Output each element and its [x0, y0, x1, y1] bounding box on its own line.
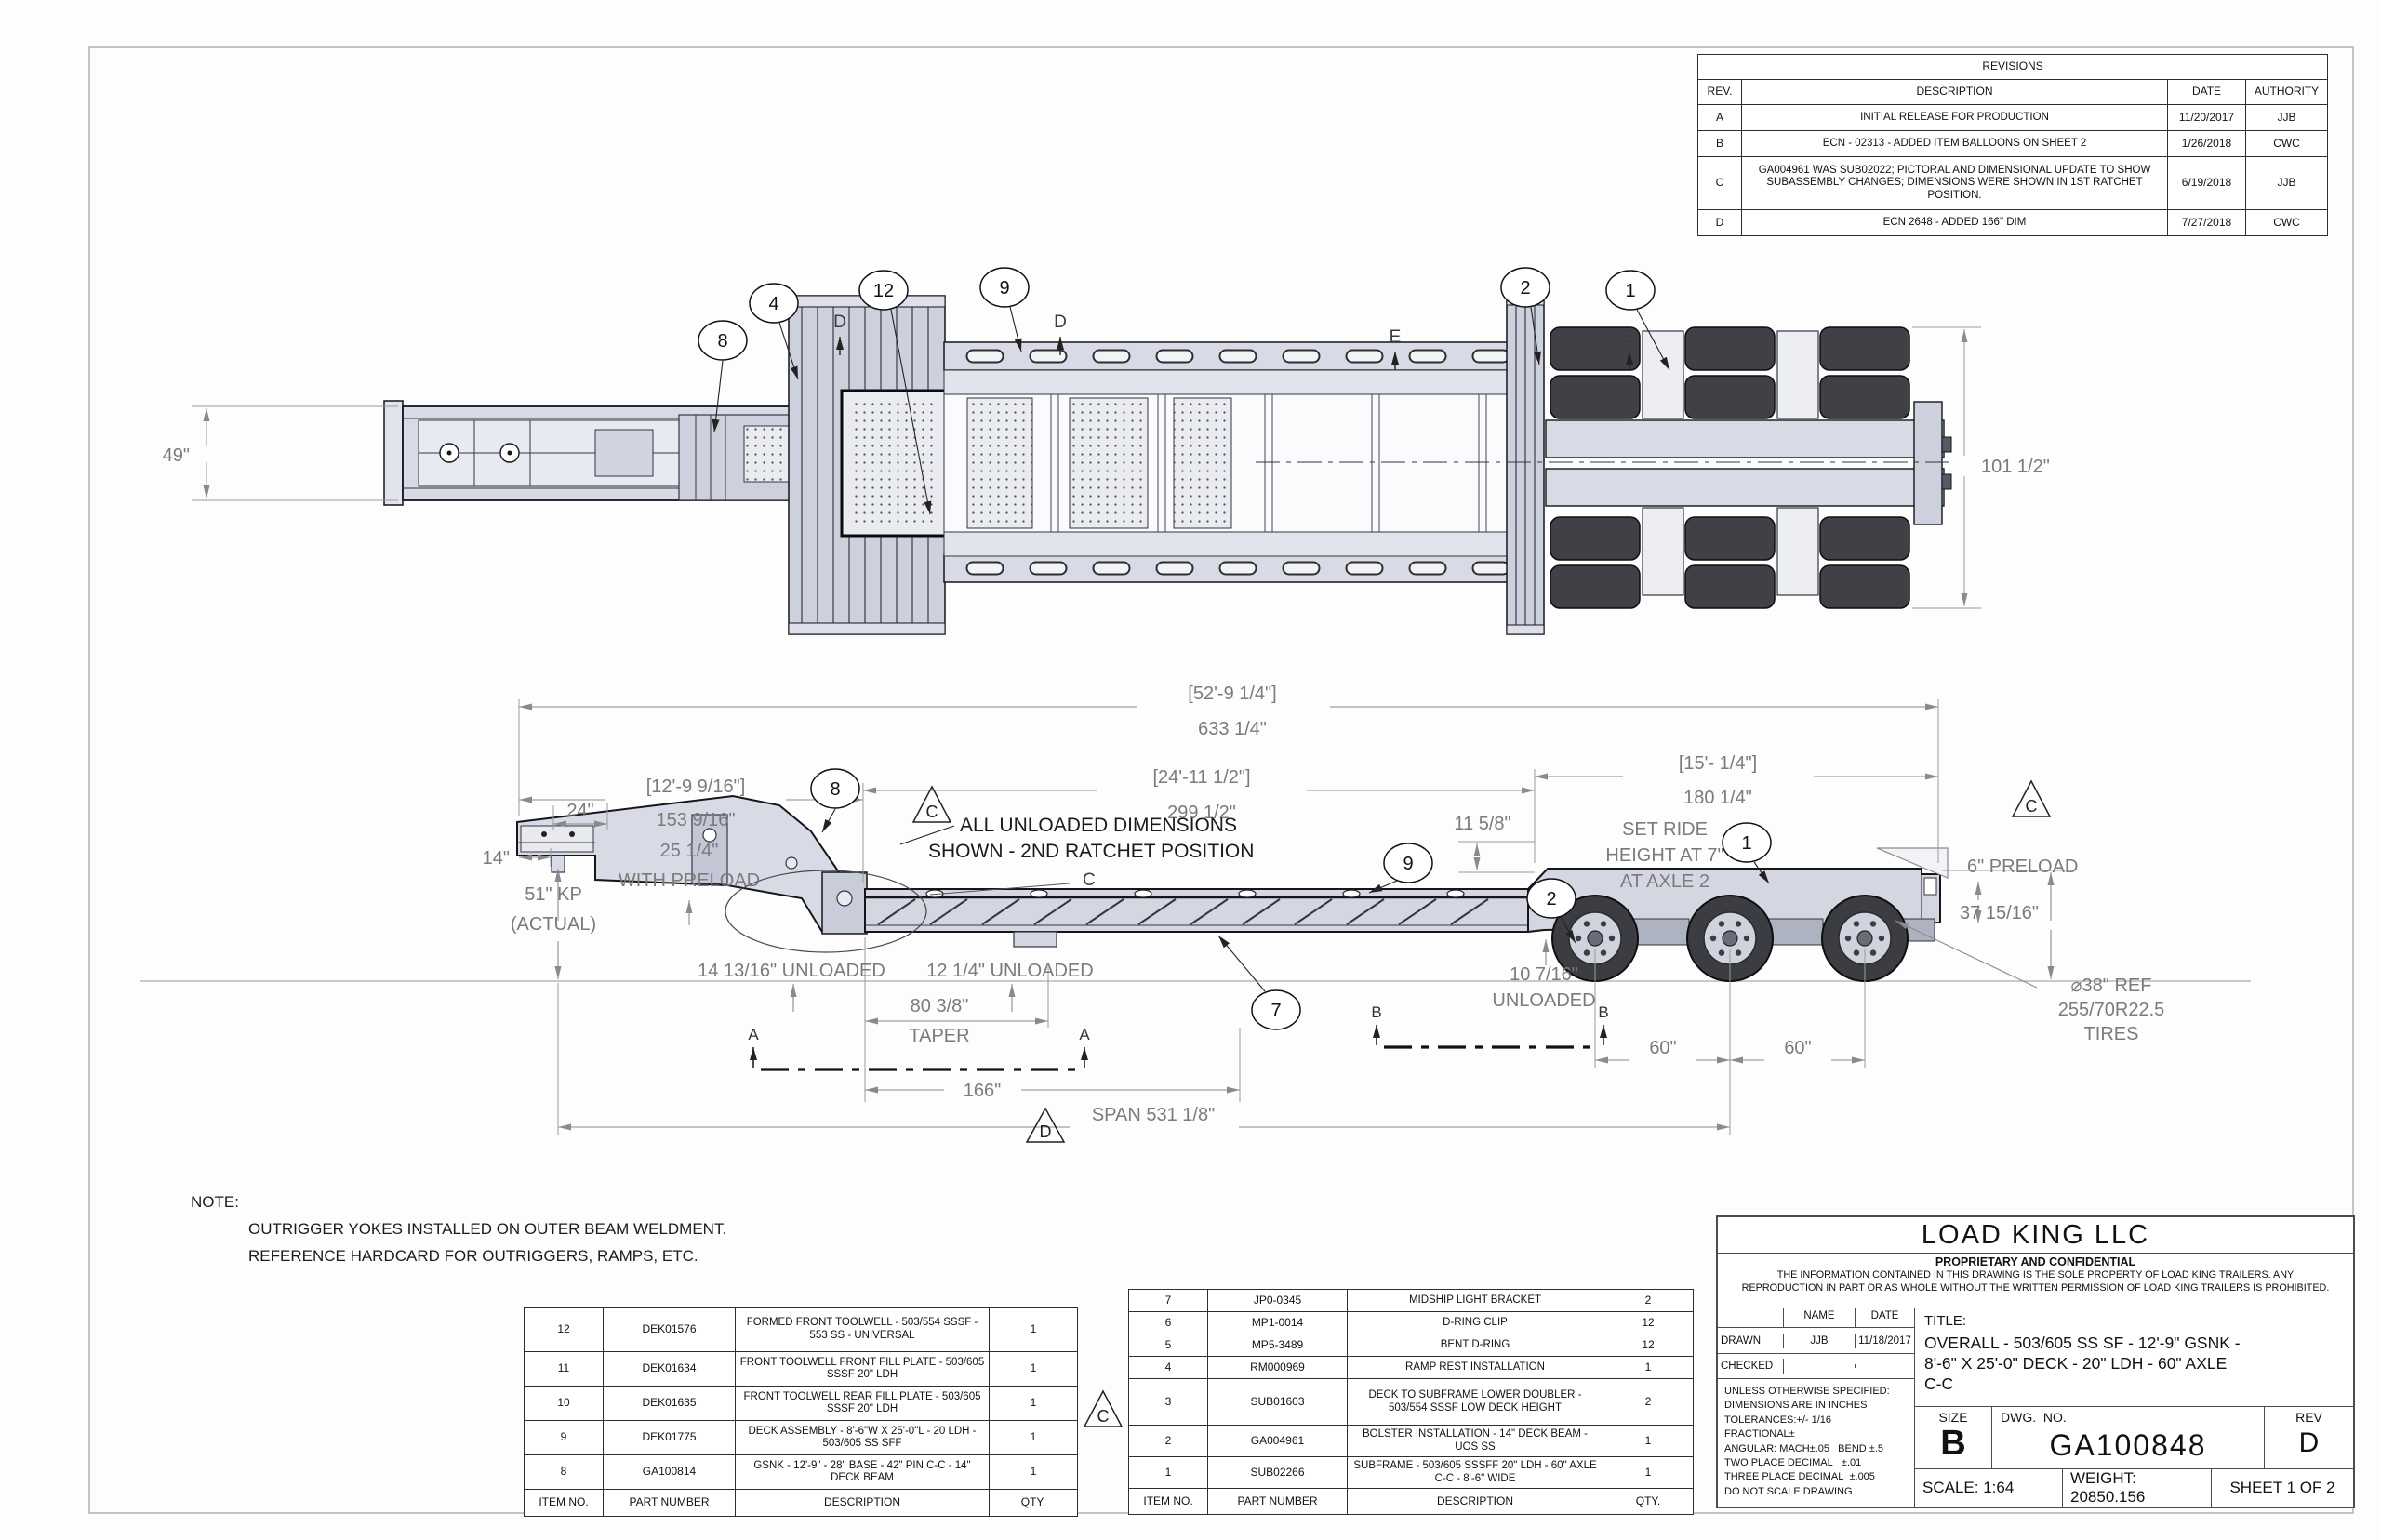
drawn-name: JJB [1784, 1334, 1856, 1348]
dim-preload6: 6" PRELOAD [1967, 856, 2078, 877]
parts-table-right: 7JP0-0345 MIDSHIP LIGHT BRACKET2 6MP1-00… [1128, 1289, 1694, 1515]
dim-unloaded-front: 14 13/16" UNLOADED [698, 961, 885, 981]
weight-value: WEIGHT: 20850.156 [2062, 1469, 2212, 1507]
date-header: DATE [1856, 1308, 1914, 1327]
svg-text:7: 7 [1270, 1001, 1281, 1021]
dim-rear-in: 180 1/4" [1683, 788, 1752, 808]
revision-row: AINITIAL RELEASE FOR PRODUCTION 11/20/20… [1698, 105, 2328, 131]
svg-text:9: 9 [999, 278, 1009, 299]
dim-kp-b: (ACTUAL) [511, 914, 596, 935]
part-row: 11DEK01634 FRONT TOOLWELL FRONT FILL PLA… [525, 1352, 1078, 1387]
authority-col-header: AUTHORITY [2246, 80, 2328, 105]
dim-preload-b: WITH PRELOAD [619, 870, 760, 891]
revision-row: CGA004961 WAS SUB02022; PICTORAL AND DIM… [1698, 157, 2328, 210]
dim-49-label: 49" [163, 445, 190, 466]
dim-unloaded-mid: 12 1/4" UNLOADED [926, 961, 1093, 981]
rev-col-header: REV. [1698, 80, 1742, 105]
part-row: 2GA004961 BOLSTER INSTALLATION - 14" DEC… [1129, 1426, 1694, 1457]
dim-49 [192, 406, 398, 500]
note-label: NOTE: [191, 1193, 726, 1212]
svg-text:C: C [926, 803, 938, 821]
unloaded-note-2: SHOWN - 2ND RATCHET POSITION [928, 841, 1254, 862]
midship-box [1014, 932, 1057, 947]
confidentiality-block: PROPRIETARY AND CONFIDENTIAL THE INFORMA… [1718, 1254, 2353, 1308]
confidential-line: THE INFORMATION CONTAINED IN THIS DRAWIN… [1718, 1268, 2353, 1281]
size-cell: SIZE B [1915, 1407, 1992, 1468]
svg-text:4: 4 [768, 294, 778, 314]
detail-c-label: C [1083, 870, 1096, 890]
note-line: REFERENCE HARDCARD FOR OUTRIGGERS, RAMPS… [248, 1247, 726, 1266]
approval-column: NAME DATE DRAWN JJB 11/18/2017 CHECKED U… [1718, 1308, 1915, 1507]
plan-tires [1550, 327, 1909, 608]
checked-label: CHECKED [1718, 1359, 1784, 1374]
parts-header-row: ITEM NO.PART NUMBER DESCRIPTIONQTY. [525, 1490, 1078, 1517]
dim-kp-a: 51" KP [525, 884, 582, 905]
drawn-label: DRAWN [1718, 1334, 1784, 1348]
svg-text:1: 1 [1741, 833, 1751, 854]
company-name: LOAD KING LLC [1718, 1217, 2353, 1254]
note-line: OUTRIGGER YOKES INSTALLED ON OUTER BEAM … [248, 1220, 726, 1239]
part-row: 7JP0-0345 MIDSHIP LIGHT BRACKET2 [1129, 1290, 1694, 1312]
drawing-sheet: 49" 101 1/2" D D E E [0, 0, 2381, 1540]
dim-60-1: 60" [1649, 1038, 1676, 1058]
dim-gsnk-ft: [12'-9 9/16"] [646, 777, 746, 797]
part-row: 4RM000969 RAMP REST INSTALLATION1 [1129, 1357, 1694, 1379]
ride-a: SET RIDE [1622, 819, 1708, 840]
note-block: NOTE: OUTRIGGER YOKES INSTALLED ON OUTER… [191, 1193, 726, 1266]
part-row: 1SUB02266 SUBFRAME - 503/605 SSSFF 20" L… [1129, 1457, 1694, 1489]
tires-c: TIRES [2084, 1024, 2139, 1044]
ride-c: AT AXLE 2 [1620, 871, 1709, 892]
svg-text:9: 9 [1403, 854, 1413, 874]
title-block: LOAD KING LLC PROPRIETARY AND CONFIDENTI… [1716, 1215, 2355, 1508]
dim-taper-b: TAPER [909, 1026, 969, 1046]
part-row: 6MP1-0014 D-RING CLIP12 [1129, 1312, 1694, 1334]
sheet-value: SHEET 1 OF 2 [2212, 1479, 2353, 1497]
plan-rear-bolster [1507, 296, 1544, 634]
rev-cell: REV D [2265, 1407, 2353, 1468]
date-col-header: DATE [2168, 80, 2246, 105]
tires-a: ⌀38" REF [2071, 976, 2152, 996]
dim-rear-ft: [15'- 1/4"] [1679, 753, 1757, 774]
revision-row: BECN - 02313 - ADDED ITEM BALLOONS ON SH… [1698, 131, 2328, 157]
dim-overall-in: 633 1/4" [1198, 719, 1267, 739]
scale-row: SCALE: 1:64 WEIGHT: 20850.156 SHEET 1 OF… [1915, 1469, 2353, 1507]
title-line-1: OVERALL - 503/605 SS SF - 12'-9" GSNK - [1924, 1333, 2344, 1353]
svg-text:12: 12 [873, 281, 894, 301]
revision-value: D [2265, 1427, 2353, 1459]
title-line-2: 8'-6" X 25'-0" DECK - 20" LDH - 60" AXLE [1924, 1353, 2344, 1374]
section-e-left: E [1390, 327, 1402, 347]
side-deck [865, 889, 1528, 947]
dim-span: SPAN 531 1/8" [1092, 1105, 1215, 1125]
dim-60-2: 60" [1784, 1038, 1811, 1058]
dwg-no-cell: DWG. NO. GA100848 [1992, 1407, 2265, 1468]
svg-text:8: 8 [717, 331, 727, 352]
part-row: 12DEK01576 FORMED FRONT TOOLWELL - 503/5… [525, 1308, 1078, 1352]
dim-unloaded-rear-a: 10 7/16" [1510, 964, 1578, 985]
side-view: C [140, 684, 2251, 1142]
dim-taper-a: 80 3/8" [911, 996, 969, 1016]
revisions-table: REVISIONS REV. DESCRIPTION DATE AUTHORIT… [1697, 54, 2328, 236]
dim-166: 166" [964, 1081, 1001, 1101]
confidential-line: REPRODUCTION IN PART OR AS WHOLE WITHOUT… [1718, 1281, 2353, 1294]
svg-text:D: D [1040, 1122, 1052, 1141]
part-row: 8GA100814 GSNK - 12'-9" - 28" BASE - 42"… [525, 1455, 1078, 1490]
part-row: 9DEK01775 DECK ASSEMBLY - 8'-6"W X 25'-0… [525, 1421, 1078, 1455]
svg-text:B: B [1598, 1003, 1608, 1021]
svg-text:C: C [2026, 797, 2038, 816]
dim-37: 37 15/16" [1960, 903, 2039, 923]
dim-14: 14" [483, 848, 510, 869]
revisions-title: REVISIONS [1698, 55, 2328, 80]
svg-text:A: A [748, 1026, 759, 1043]
unloaded-note-1: ALL UNLOADED DIMENSIONS [960, 815, 1237, 836]
svg-text:1: 1 [1625, 281, 1635, 301]
part-row: 10DEK01635 FRONT TOOLWELL REAR FILL PLAT… [525, 1387, 1078, 1421]
drawing-title: TITLE: OVERALL - 503/605 SS SF - 12'-9" … [1915, 1308, 2353, 1407]
part-row: 3SUB01603 DECK TO SUBFRAME LOWER DOUBLER… [1129, 1379, 1694, 1426]
revision-row: DECN 2648 - ADDED 166" DIM 7/27/2018CWC [1698, 210, 2328, 236]
tolerance-block: UNLESS OTHERWISE SPECIFIED: DIMENSIONS A… [1718, 1379, 1914, 1507]
svg-text:A: A [1079, 1026, 1090, 1043]
plan-front-bumper [384, 401, 403, 505]
scale-value: SCALE: 1:64 [1915, 1479, 2062, 1497]
section-e-right: E [1624, 327, 1636, 347]
drawing-number: GA100848 [1992, 1428, 2264, 1463]
dim-preload-a: 25 1/4" [660, 841, 719, 861]
rev-flag-c-table: C [1084, 1391, 1122, 1427]
title-label: TITLE: [1924, 1313, 2344, 1329]
desc-col-header: DESCRIPTION [1742, 80, 2168, 105]
title-line-3: C-C [1924, 1374, 2344, 1394]
dim-deck-ft: [24'-11 1/2"] [1152, 767, 1250, 788]
svg-text:2: 2 [1520, 278, 1530, 299]
confidential-title: PROPRIETARY AND CONFIDENTIAL [1718, 1255, 2353, 1268]
dim-24: 24" [566, 801, 593, 821]
section-d-left: D [833, 312, 846, 332]
svg-text:8: 8 [830, 779, 840, 800]
svg-text:C: C [1097, 1407, 1110, 1426]
dim-gsnk-in: 153 9/16" [657, 810, 736, 830]
top-view: 49" 101 1/2" D D E E [163, 268, 2050, 634]
ride-b: HEIGHT AT 7" [1605, 845, 1723, 866]
tires-b: 255/70R22.5 [2058, 1000, 2165, 1020]
dim-unloaded-rear-b: UNLOADED [1492, 990, 1595, 1011]
dim-overall-ft: [52'-9 1/4"] [1188, 684, 1276, 704]
svg-text:B: B [1371, 1003, 1381, 1021]
size-value: B [1915, 1426, 1991, 1461]
name-header: NAME [1784, 1308, 1856, 1327]
parts-table-left: 12DEK01576 FORMED FRONT TOOLWELL - 503/5… [524, 1307, 1078, 1517]
drawn-date: 11/18/2017 [1856, 1334, 1914, 1348]
dim-101-label: 101 1/2" [1981, 457, 2050, 477]
part-row: 5MP5-3489 BENT D-RING12 [1129, 1334, 1694, 1357]
parts-header-row: ITEM NO.PART NUMBER DESCRIPTIONQTY. [1129, 1489, 1694, 1515]
dim-11: 11 5/8" [1454, 814, 1510, 834]
svg-text:2: 2 [1546, 889, 1556, 909]
section-d-right: D [1054, 312, 1067, 332]
